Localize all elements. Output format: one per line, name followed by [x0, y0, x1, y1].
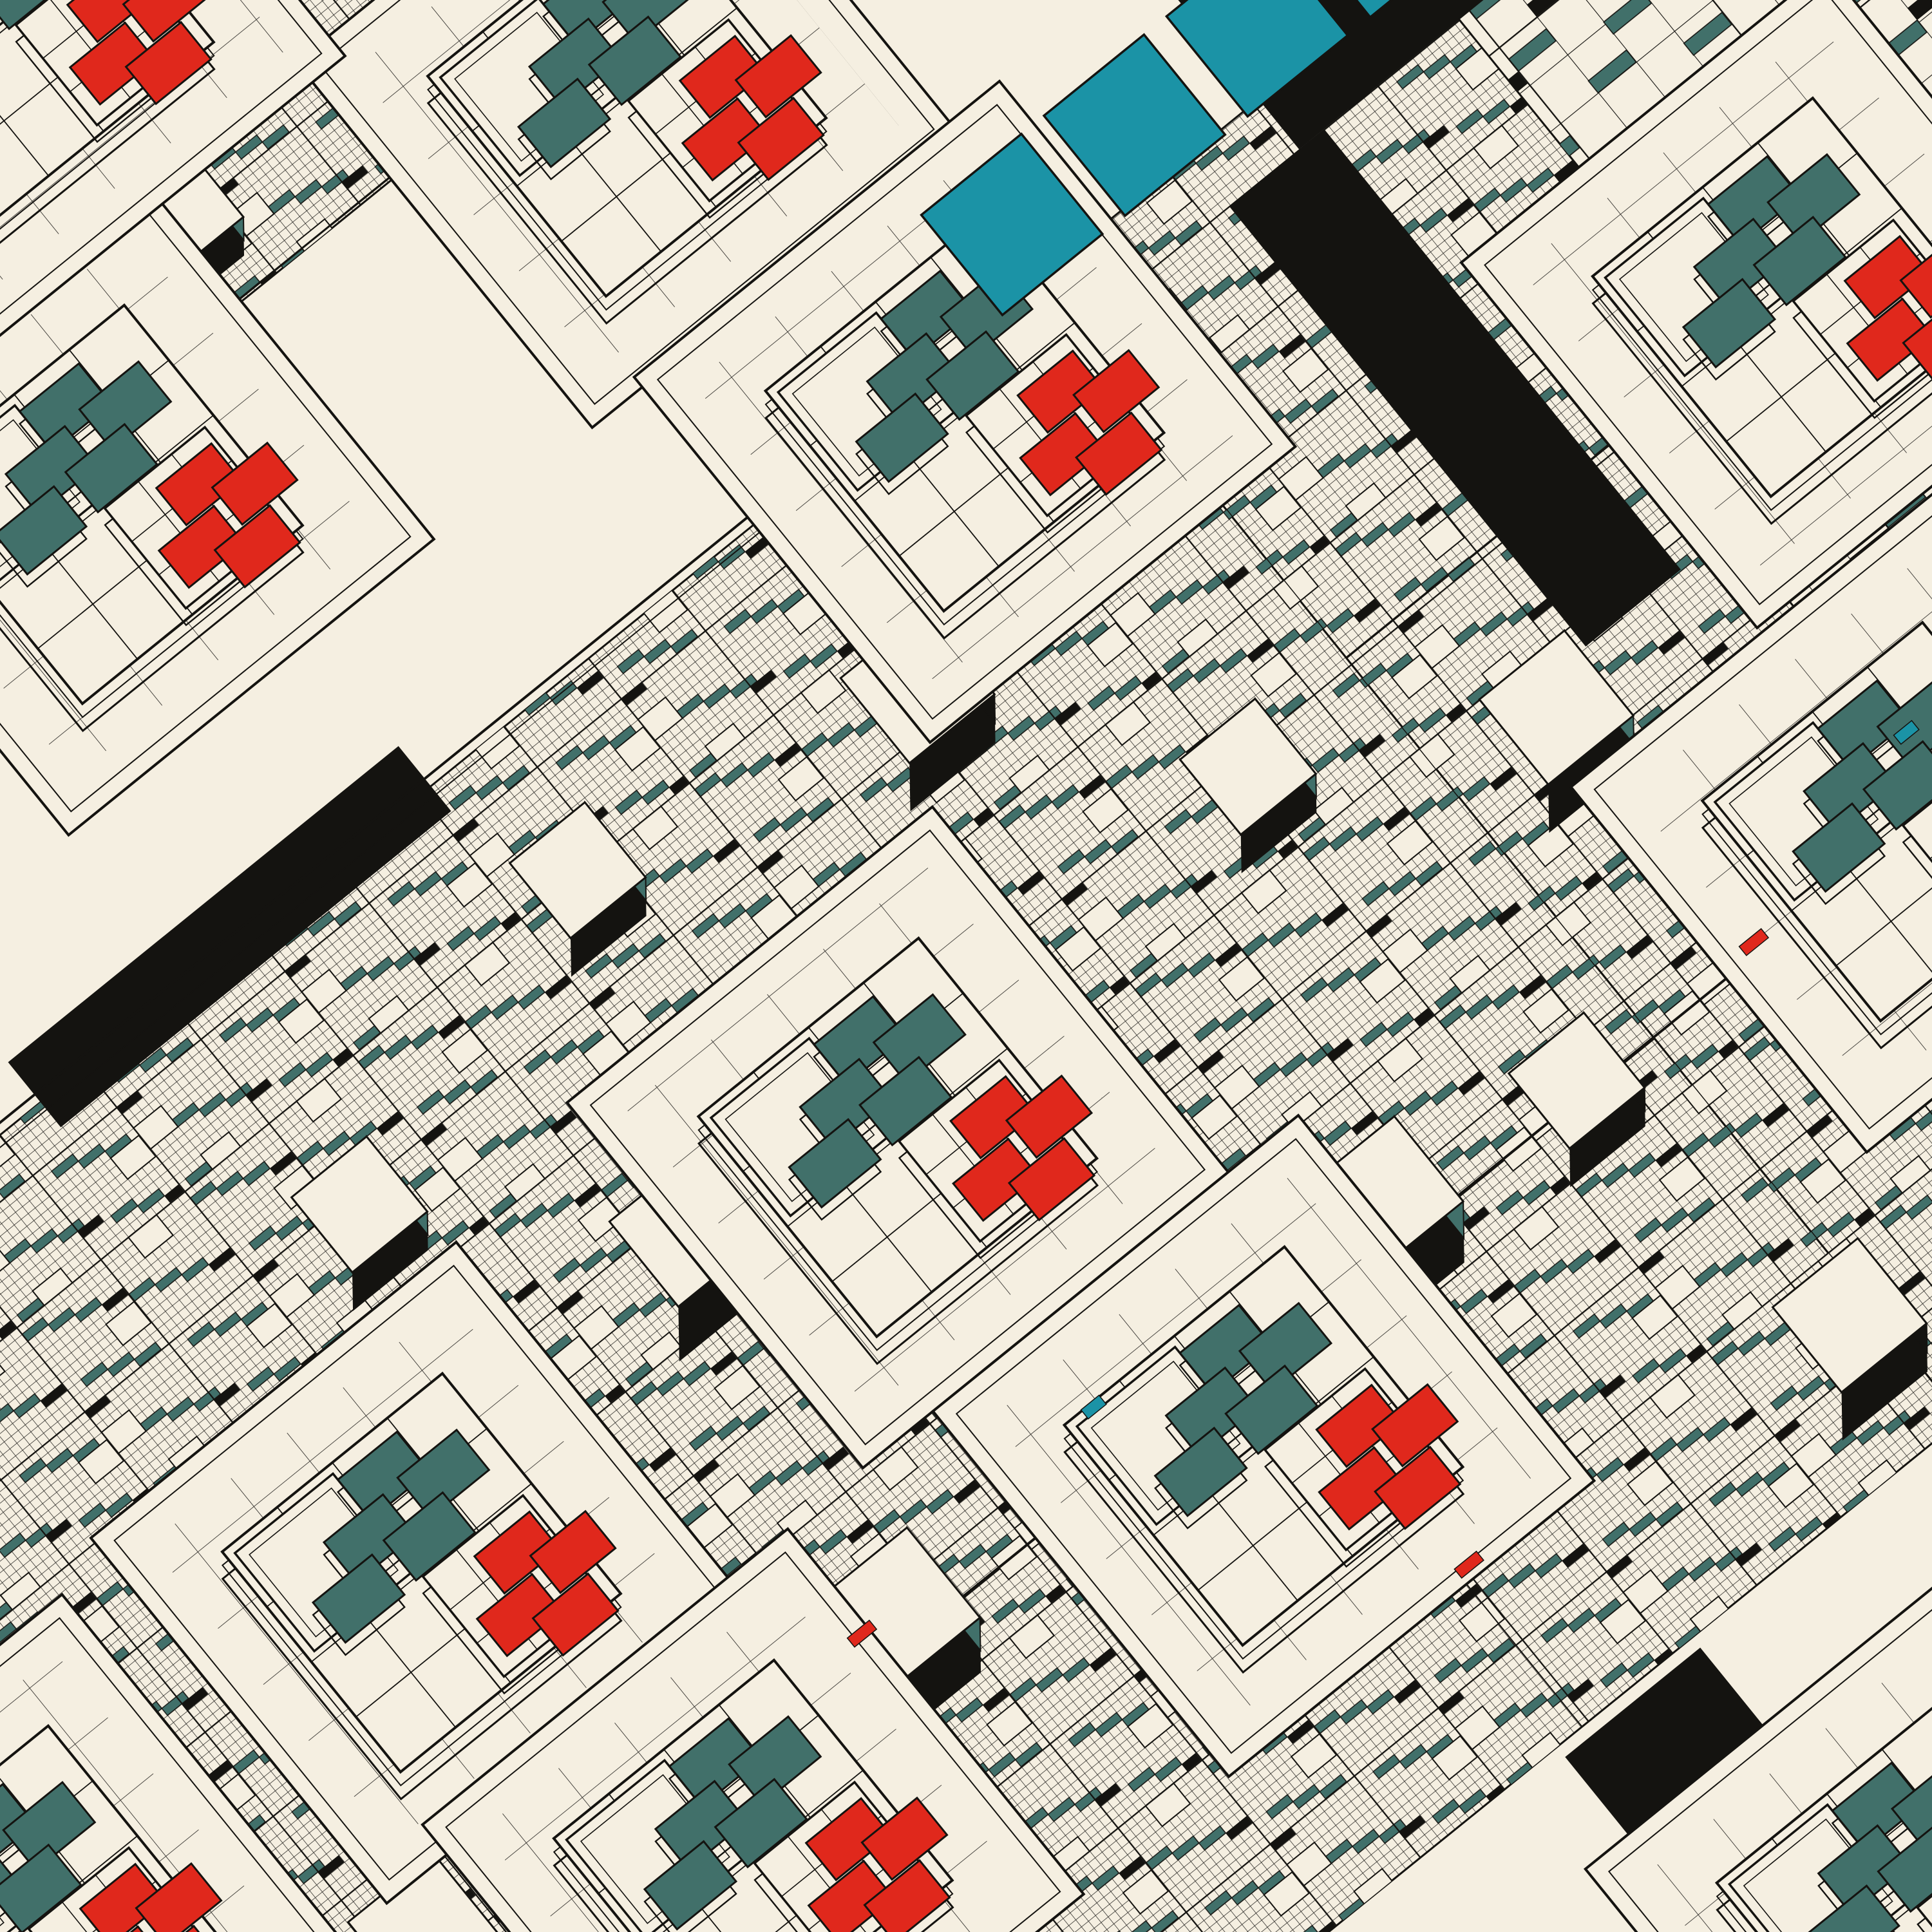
- rotated-world: [0, 0, 1932, 1932]
- card-grid-line: [311, 1484, 531, 1662]
- road-lines: [0, 0, 1932, 1932]
- teal-block: [0, 486, 86, 574]
- red-accent: [1454, 1551, 1484, 1578]
- teal-block: [1804, 743, 1895, 831]
- raised-cube: [583, 1153, 791, 1361]
- teal-block: [1180, 1305, 1271, 1393]
- card-face: [766, 213, 1164, 611]
- card-grid-line: [14, 394, 193, 614]
- subcard-grid-line: [662, 74, 743, 174]
- teal-block: [669, 1719, 761, 1806]
- teal-block: [518, 79, 610, 167]
- teal-block: [324, 1495, 415, 1582]
- red-block: [1009, 1139, 1094, 1220]
- field-streaks: [1427, 0, 1932, 350]
- subcard-grid-line: [926, 1094, 1026, 1175]
- card-subsquare: [1605, 198, 1783, 376]
- plaza-inner-outline: [115, 1265, 729, 1880]
- plaza: [0, 1595, 358, 1932]
- cube-top-face: [1509, 1012, 1645, 1148]
- teal-block-echo: [857, 406, 948, 494]
- subcard-grid-line: [1332, 1396, 1413, 1495]
- subcard-grid-line: [477, 1562, 577, 1643]
- card-grid-line: [0, 1770, 171, 1932]
- teal-block: [814, 996, 905, 1084]
- card-grid-line: [562, 63, 782, 241]
- red-accent: [1739, 929, 1769, 956]
- raised-cubes: [0, 0, 1932, 1932]
- teal-block: [0, 1847, 21, 1932]
- subcard-stack-outline: [16, 0, 197, 142]
- field-block-lines: [513, 1038, 1932, 1932]
- card-subsquare: [711, 1038, 889, 1216]
- red-block: [138, 1926, 223, 1932]
- field-block-lines: [0, 0, 734, 453]
- teal-block: [1878, 679, 1932, 766]
- teal-block-echo: [6, 439, 97, 526]
- red-block: [1848, 299, 1932, 381]
- subcard-grid-line: [138, 481, 219, 581]
- card-stack-outline: [0, 332, 303, 731]
- plaza-inner-outline: [1484, 0, 1932, 604]
- card-subsquare: [440, 0, 618, 176]
- cube-riser-face: [355, 1137, 439, 1235]
- teal-block: [338, 1432, 430, 1519]
- fine-grid-field: [1347, 42, 1932, 1419]
- card-grid-line: [609, 1794, 787, 1932]
- card-grid-line: [1757, 756, 1932, 976]
- tiny-accents: [820, 721, 1932, 1902]
- red-block: [215, 506, 300, 587]
- teal-block: [1240, 1303, 1331, 1391]
- cyan-square-row: [922, 0, 1593, 315]
- card-stack-outline: [554, 1674, 952, 1932]
- cube-shadow-face: [1819, 1323, 1932, 1441]
- teal-block: [6, 426, 97, 514]
- card-grid-line: [643, 1770, 863, 1932]
- cube-riser-face: [1114, 1367, 1197, 1466]
- teal-block: [589, 17, 681, 104]
- black-extrusion-band: [1229, 129, 1680, 646]
- teal-block-echo: [645, 1853, 736, 1932]
- red-block: [70, 23, 155, 104]
- raised-cube: [1032, 1367, 1205, 1542]
- teal-block: [3, 1782, 95, 1870]
- field-fine-cells: [0, 288, 1654, 1932]
- card-stack-outline: [428, 0, 827, 323]
- plaza-thin-grid: [1520, 26, 1932, 569]
- teal-block: [1793, 804, 1884, 891]
- subcard-grid-line: [1292, 1402, 1392, 1483]
- plaza-inner-outline: [1609, 1596, 1932, 1932]
- red-block: [83, 1927, 168, 1932]
- plaza: [0, 0, 345, 352]
- field-base: [1747, 172, 1932, 899]
- subcard-face: [1794, 220, 1932, 401]
- subcard-face: [1903, 744, 1932, 925]
- red-block: [683, 99, 768, 180]
- card-grid-line: [1109, 1302, 1329, 1480]
- red-block: [80, 1864, 166, 1932]
- teal-block-echo: [656, 1794, 747, 1881]
- card-subsquare: [1715, 723, 1893, 900]
- card-plaza-E: [567, 807, 1228, 1468]
- cube-top-face: [840, 609, 994, 763]
- card-stack-outline: [1593, 125, 1932, 524]
- field-fine-cells: [0, 0, 734, 453]
- teal-block: [1166, 1368, 1258, 1455]
- card-grid-line: [820, 346, 999, 567]
- card-face: [1065, 1247, 1463, 1645]
- raised-cube: [273, 1137, 446, 1311]
- raised-cube: [89, 142, 262, 316]
- subcard-face: [1265, 1368, 1446, 1549]
- red-block: [951, 1076, 1036, 1158]
- teal-block: [1754, 217, 1846, 305]
- red-block: [1845, 236, 1930, 318]
- teal-block: [1768, 155, 1859, 242]
- card-grid-line: [719, 1705, 897, 1925]
- field-fine-cells: [1347, 42, 1932, 1419]
- subcard-face: [966, 335, 1147, 516]
- plaza-thin-grid: [0, 1653, 299, 1932]
- card-grid-line: [1747, 677, 1932, 856]
- subcard-face: [16, 0, 197, 125]
- cube-riser-face: [419, 1853, 516, 1932]
- card-plaza-D: [1461, 0, 1932, 628]
- subcard-grid-line: [808, 1849, 908, 1930]
- card-face: [428, 0, 826, 296]
- card-subsquare-inner: [249, 1488, 398, 1637]
- card-grid-line: [0, 1815, 117, 1932]
- card-stack-outline: [699, 965, 1097, 1364]
- raised-cube: [1927, 1040, 1932, 1215]
- teal-block: [656, 1781, 747, 1869]
- artwork-canvas: [0, 0, 1932, 1932]
- teal-block: [881, 271, 972, 359]
- subcard-grid-line: [821, 1809, 902, 1909]
- card-face: [0, 1726, 227, 1932]
- card-stack-outline: [0, 0, 214, 234]
- card-grid-line: [0, 1836, 137, 1932]
- card-grid-line: [788, 1048, 1008, 1227]
- teal-block: [800, 1059, 891, 1147]
- plaza-inner-outline: [0, 0, 321, 328]
- teal-block: [384, 1493, 475, 1580]
- teal-block-echo: [313, 1567, 404, 1654]
- card-grid-line: [483, 32, 661, 252]
- plaza-thin-grid: [693, 140, 1236, 684]
- red-block: [531, 1511, 616, 1593]
- teal-block-echo: [867, 346, 959, 433]
- cube-shadow-face: [1222, 774, 1335, 873]
- cube-top-face: [1050, 1367, 1186, 1503]
- plaza-inner-outline: [0, 198, 410, 812]
- card-stack-outline: [222, 1387, 621, 1786]
- cube-top-face: [1309, 1116, 1463, 1270]
- subcard-grid-line: [489, 1522, 571, 1622]
- field-block-lines: [1038, 0, 1932, 658]
- teal-block: [1819, 1826, 1910, 1913]
- teal-block-echo: [0, 499, 86, 587]
- subcard-stack-outline: [423, 1512, 604, 1693]
- teal-block: [715, 1779, 807, 1867]
- field-medium-cells: [1747, 172, 1932, 899]
- plaza-thin-grid: [0, 232, 375, 776]
- card-stack-outline: [0, 0, 214, 247]
- card-face: [1593, 98, 1932, 497]
- cyan-accent: [1081, 1396, 1106, 1419]
- teal-block: [1226, 1366, 1317, 1454]
- field-streaks: [1347, 42, 1932, 1419]
- plaza-inner-outline: [591, 830, 1205, 1444]
- teal-block-echo: [881, 283, 972, 371]
- field-streaks: [513, 1038, 1932, 1932]
- card-subsquare-inner: [793, 327, 942, 476]
- teal-block: [729, 1716, 820, 1804]
- card-grid-line: [743, 993, 963, 1171]
- card-subsquare: [567, 1760, 744, 1932]
- teal-block-echo: [1819, 1838, 1910, 1926]
- raised-cube: [544, 1696, 717, 1871]
- subcard-stack-outline: [1903, 761, 1932, 942]
- card-grid-line: [0, 0, 80, 55]
- plaza: [296, 0, 958, 428]
- subcard-grid-line: [43, 0, 143, 59]
- card-grid-line: [356, 1539, 576, 1717]
- card-stack-outline: [0, 319, 303, 717]
- field-streaks: [0, 288, 1654, 1932]
- card-subsquare: [0, 405, 94, 583]
- red-block: [475, 1511, 560, 1593]
- red-block: [809, 1861, 894, 1932]
- red-block: [806, 1799, 891, 1880]
- card-face: [0, 0, 214, 220]
- card-plaza-B: [0, 174, 434, 835]
- subcard-grid-line: [82, 0, 164, 71]
- cube-shadow-face: [864, 1618, 1007, 1745]
- teal-block: [0, 0, 68, 29]
- card-grid-line: [1772, 1838, 1932, 1932]
- raised-cube: [408, 0, 609, 173]
- card-stack-outline: [0, 1739, 227, 1932]
- subcard-face: [105, 427, 286, 608]
- red-block: [736, 35, 821, 117]
- card-grid-line: [1727, 263, 1932, 442]
- card-stack-outline: [554, 1687, 953, 1932]
- red-block: [1007, 1076, 1092, 1158]
- medium-grid-field: [1427, 0, 1932, 350]
- cube-top-face: [609, 1153, 763, 1307]
- card-grid-line: [277, 1507, 455, 1727]
- card-stack-outline: [0, 1753, 227, 1932]
- card-grid-line: [899, 378, 1119, 556]
- cube-top-face: [562, 1696, 698, 1832]
- subcard-grid-line: [70, 11, 170, 92]
- background: [0, 0, 1932, 1932]
- subcard-stack-outline: [29, 1864, 210, 1932]
- card-grid-line: [69, 350, 247, 570]
- plaza-thin-grid: [1630, 550, 1932, 1094]
- raised-cube: [325, 1853, 526, 1932]
- card-grid-line: [1198, 1412, 1418, 1590]
- teal-block-echo: [1832, 1776, 1924, 1863]
- field-block-lines: [1747, 172, 1932, 899]
- card-grid-line: [38, 470, 258, 649]
- cube-shadow-face: [1092, 1443, 1205, 1542]
- cube-riser-face: [1573, 1012, 1656, 1111]
- subcard-grid-line: [1033, 361, 1114, 461]
- teal-block: [544, 0, 635, 44]
- card-stack-outline: [1065, 1274, 1463, 1672]
- red-block: [1903, 298, 1932, 380]
- teal-block: [1808, 1886, 1899, 1932]
- red-block: [136, 1864, 221, 1932]
- teal-block-echo: [1818, 693, 1909, 781]
- cube-shadow-face: [552, 877, 665, 976]
- raised-cube: [1842, 676, 1932, 894]
- subcard-grid-line: [1298, 1423, 1379, 1522]
- card-stack-outline: [1717, 1732, 1932, 1932]
- black-extrusion-band: [8, 746, 451, 1128]
- plaza: [0, 174, 434, 835]
- field-block-lines: [1347, 42, 1932, 1419]
- subcard-stack-outline: [1265, 1385, 1446, 1566]
- teal-block: [1708, 156, 1799, 244]
- teal-block-echo: [670, 1731, 761, 1819]
- card-grid-line: [593, 0, 772, 162]
- card-grid-line: [810, 268, 1030, 446]
- card-grid-line: [1836, 788, 1932, 966]
- card-grid-line: [931, 257, 1109, 477]
- card-grid-line: [517, 8, 737, 186]
- subcard-grid-line: [782, 1815, 882, 1897]
- plaza-inner-outline: [446, 1552, 1061, 1932]
- road-edge-line: [0, 319, 1023, 1527]
- card-grid-line: [598, 1715, 819, 1893]
- cube-top-face: [348, 1853, 502, 1932]
- road-edge-line: [52, 0, 732, 451]
- teal-block: [313, 1555, 404, 1642]
- subcard-grid-line: [953, 1127, 1053, 1208]
- red-block: [1074, 350, 1159, 432]
- subcard-grid-line: [95, 1875, 176, 1932]
- card-grid-line: [1827, 1794, 1932, 1932]
- card-stack-outline: [699, 952, 1097, 1350]
- card-grid-line: [0, 0, 158, 87]
- raised-cube: [791, 1528, 1007, 1745]
- cube-top-face: [292, 1137, 428, 1273]
- teal-block-echo: [1155, 1441, 1247, 1528]
- card-grid-line: [1153, 1357, 1374, 1535]
- field-base: [0, 0, 734, 453]
- card-subsquare-inner: [1620, 213, 1768, 361]
- field-streaks: [0, 0, 734, 453]
- teal-block-echo: [1808, 1898, 1899, 1932]
- card-stack-outline: [1593, 111, 1932, 510]
- subcard-stack-outline: [1918, 1843, 1932, 1932]
- card-plaza-C: [634, 81, 1296, 743]
- teal-block-echo: [338, 1444, 430, 1532]
- card-subsquare: [235, 1473, 413, 1651]
- cube-shadow-face: [605, 1771, 717, 1870]
- red-block: [1375, 1447, 1460, 1529]
- red-block: [124, 0, 209, 41]
- card-stack-outline: [766, 240, 1164, 638]
- teal-block: [0, 0, 8, 31]
- cyan-square: [922, 134, 1103, 315]
- card-grid-line: [1850, 1870, 1932, 1932]
- card-stack-outline: [1717, 1718, 1932, 1932]
- cube-riser-face: [891, 1528, 996, 1651]
- isometric-artwork: [0, 0, 1932, 1932]
- card-grid-line: [0, 1891, 182, 1932]
- cyan-square: [1166, 0, 1347, 117]
- subcard-face: [29, 1848, 210, 1932]
- plaza: [1586, 1573, 1932, 1932]
- shadow-bands: [0, 0, 1932, 1932]
- teal-block: [1832, 1763, 1924, 1850]
- subcard-grid-line: [450, 1529, 550, 1610]
- teal-block-echo: [1166, 1380, 1258, 1468]
- cube-top-face: [431, 0, 585, 125]
- subcard-grid-line: [1860, 247, 1932, 347]
- field-base: [1347, 42, 1932, 1419]
- red-block: [159, 506, 244, 588]
- card-subsquare: [0, 0, 5, 100]
- teal-block-echo: [790, 1132, 881, 1219]
- card-grid-line: [832, 1103, 1052, 1282]
- card-grid-line: [1812, 712, 1932, 932]
- red-block: [533, 1574, 618, 1656]
- cube-riser-face: [1551, 630, 1648, 744]
- black-extrusion-band: [0, 468, 77, 600]
- teal-block: [0, 1907, 10, 1932]
- subcard-stack-outline: [755, 1799, 936, 1932]
- cyan-accent: [1893, 721, 1918, 744]
- card-grid-line: [1868, 667, 1932, 887]
- cube-top-face: [1479, 630, 1633, 784]
- fine-grid-field: [0, 0, 734, 453]
- card-subsquare-inner: [0, 420, 80, 569]
- plaza-thin-grid: [626, 866, 1170, 1409]
- card-grid-line: [753, 1072, 932, 1292]
- raised-cube: [817, 609, 1018, 811]
- card-grid-line: [0, 0, 104, 131]
- red-block: [68, 0, 153, 42]
- card-grid-line: [864, 983, 1042, 1203]
- subcard-grid-line: [683, 86, 782, 167]
- road-edge-line: [513, 421, 1932, 1932]
- teal-block: [789, 1119, 880, 1207]
- plaza: [422, 1529, 1084, 1932]
- teal-block: [941, 269, 1032, 357]
- cube-shadow-face: [1551, 1088, 1663, 1187]
- subcard-stack-outline: [105, 444, 286, 625]
- cube-riser-face: [679, 1153, 780, 1271]
- road-edge-line: [0, 305, 1010, 1512]
- subcard-grid-line: [1826, 274, 1908, 374]
- subcard-grid-line: [456, 1549, 537, 1649]
- teal-block-echo: [0, 1859, 21, 1932]
- card-grid-line: [1806, 1815, 1932, 1932]
- card-face: [1717, 1705, 1932, 1932]
- card-subsquare-inner: [726, 1053, 875, 1202]
- cube-top-face: [1773, 1238, 1927, 1392]
- teal-block-echo: [518, 91, 610, 179]
- teal-block: [1878, 1824, 1932, 1911]
- subcard-stack-outline: [629, 37, 810, 218]
